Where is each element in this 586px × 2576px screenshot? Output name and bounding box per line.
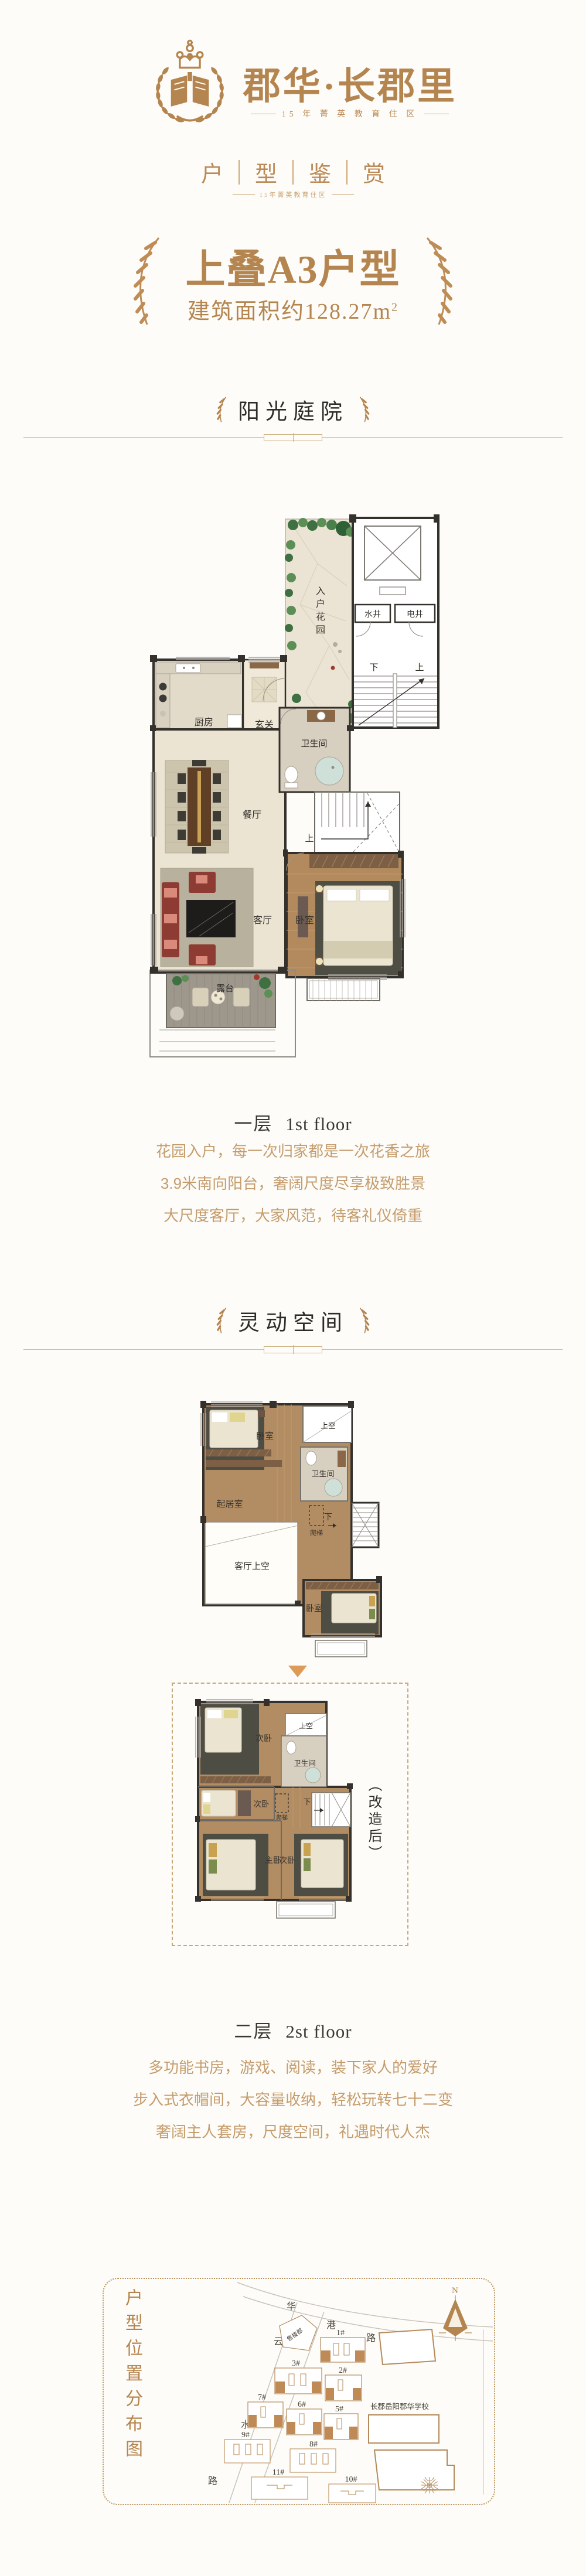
room-label-bedroom-a: 次卧 [255,1734,272,1744]
brand-tagline: 15 年 菁 英 教 育 住 区 [251,108,449,120]
living-void: 客厅上空 [205,1522,298,1604]
bathroom-f2: 卫生间 [301,1447,347,1501]
floor2-description: 多功能书房，游戏、阅读，装下家人的爱好 步入式衣帽间，大容量收纳，轻松玩转七十二… [0,2052,586,2148]
unit-title: 上叠A3户型 [0,237,586,295]
sales-office: 售楼部 [280,2315,317,2350]
stove-burner [159,683,167,691]
road-label-char: 港 [326,2320,336,2331]
book-icon [171,72,209,107]
floor2-plan-original: 卧室 上空 卫生间 起居室 客厅上空 爬梯 [193,1397,387,1661]
badge-text: 阳光庭院 [238,394,348,425]
stair-label-down: 下 [369,663,378,673]
room-label-bedroom-c: 次卧 [280,1856,295,1865]
compass-n: N [452,2286,458,2295]
bathtub [315,757,343,785]
building-label: 6# [298,2400,306,2409]
kitchen: 厨房 [154,660,243,729]
desc-line: 奢阔主人套房，尺度空间，礼遇时代人杰 [0,2116,586,2148]
building-core: 水井 电井 下 上 [353,518,438,728]
sitemap: 华 港 路 云 水 路 N 售楼部 1# [104,2279,494,2504]
sitemap-title: 户型位置分布图 [119,2288,145,2465]
stair-label-down: 下 [324,1513,332,1522]
room-label-char: 入 [316,586,325,596]
reno-void: 上空 [285,1714,326,1736]
desc-line: 大尺度客厅，大家风范，待客礼仪倚重 [0,1200,586,1232]
series-separator [346,160,347,185]
poster-page: 郡华·长郡里 15 年 菁 英 教 育 住 区 户 型 鉴 赏 15年菁英教育住… [0,0,586,2576]
series-tagline: 15年菁英教育住区 [0,190,586,199]
room-label-bedroom: 卧室 [256,1431,274,1441]
room-label-char: 园 [316,625,325,635]
room-label-ladder: 爬梯 [310,1529,323,1537]
room-label-void: 上空 [321,1421,336,1430]
desc-line: 步入式衣帽间，大容量收纳，轻松玩转七十二变 [0,2084,586,2116]
wheat-branch-right-icon [357,391,370,428]
bedroom-f1: 卧室 [287,853,403,977]
room-label-electric-shaft: 电井 [407,610,423,619]
void-top: 上空 [303,1406,352,1442]
floor1-label: 一层1st floor [0,1109,586,1135]
stair-label-down: 下 [304,1798,311,1806]
reno-bathroom: 卫生间 [281,1736,326,1787]
building-label: 8# [309,2440,318,2449]
floor1-label-cn: 一层 [234,1114,272,1134]
room-label-char: 户 [316,599,325,609]
building-8: 8# [290,2440,336,2472]
room-label-bedroom-b: 次卧 [254,1800,270,1809]
reno-balcony [277,1902,335,1918]
desc-line: 花园入户，每一次归家都是一次花香之旅 [0,1135,586,1168]
building-10: 10# [329,2475,376,2503]
building-6: 6# [287,2400,322,2435]
room-label-void: 上空 [299,1722,313,1730]
building-label: 9# [241,2431,250,2439]
unit-area-sup: 2 [391,301,398,313]
bedroom-f2-bottom: 卧室 [304,1580,381,1636]
arrow-down-icon [288,1666,307,1677]
series-char: 鉴 [309,156,331,188]
terrace-chair [192,988,209,1006]
toilet [285,766,298,783]
floor2-label-cn: 二层 [234,2021,272,2042]
room-label-terrace: 露台 [216,984,234,994]
room-label-char: 花 [316,612,325,622]
tagline-line-left [233,195,255,195]
desc-line: 多功能书房，游戏、阅读，装下家人的爱好 [0,2052,586,2084]
room-label-bedroom2: 卧室 [306,1603,322,1613]
floor2-label-en: 2st floor [285,2021,352,2042]
floor1-plan: 入 户 花 园 水井 电井 下 上 [146,504,451,1090]
building-5: 5# [324,2405,358,2439]
renovated-tag: （改造后） [363,1777,384,1862]
building-9: 9# [224,2431,270,2463]
interior-stairs: 上 [305,792,400,853]
building-label: 7# [258,2393,266,2402]
building-label: 3# [292,2359,300,2368]
divider-tick [293,1345,294,1354]
floor2-plan-renovated: 次卧 上空 卫生间 次卧 爬梯 [185,1696,360,1925]
school-label: 长郡岳阳郡华学校 [370,2402,430,2411]
building-label: 10# [345,2475,357,2484]
room-label-bedroom: 卧室 [295,915,314,926]
building-label: 1# [336,2329,345,2338]
compass-icon: N [439,2286,472,2341]
section-badge-flexible-space: 灵动空间 [0,1302,586,1339]
room-label-bathroom: 卫生间 [294,1759,316,1768]
brand-tagline-text: 15 年 菁 英 教 育 住 区 [282,108,418,120]
section-divider [23,432,563,443]
series-title: 户 型 鉴 赏 [0,156,586,188]
terrace-chair [233,988,250,1006]
series-char: 赏 [363,156,385,188]
crown-icon [177,40,203,67]
road-label-char: 路 [208,2476,217,2486]
badge-text: 灵动空间 [238,1305,348,1336]
floor1-label-en: 1st floor [285,1114,352,1134]
floor1-description: 花园入户，每一次归家都是一次花香之旅 3.9米南向阳台，奢阔尺度尽享极致胜景 大… [0,1135,586,1232]
stair-label-up: 上 [415,663,424,673]
series-separator [292,160,294,185]
room-label-bathroom: 卫生间 [311,1469,334,1478]
room-label-living-void: 客厅上空 [234,1561,270,1571]
building-7: 7# [248,2393,283,2428]
wheat-branch-left-icon [216,1302,229,1339]
room-label-family-room: 起居室 [216,1499,243,1509]
section-divider [23,1345,563,1355]
kitchen-sink [176,664,200,673]
series-char: 户 [201,156,223,188]
bathroom-f1: 卫生间 [280,708,350,792]
entry-garden: 入 户 花 园 [285,518,356,728]
series-separator [239,160,240,185]
bedroom-balcony [307,978,380,1001]
building-label: 11# [272,2468,284,2477]
floor2-label: 二层2st floor [0,2017,586,2043]
room-label-kitchen: 厨房 [195,717,213,728]
building-label: 5# [335,2405,343,2414]
road-label-char: 路 [366,2333,376,2343]
brand-name: 郡华·长郡里 [237,56,463,110]
stove-burner [159,695,167,702]
section-badge-sunny-courtyard: 阳光庭院 [0,391,586,428]
building-label: 2# [339,2366,347,2375]
unit-area: 建筑面积约128.27m2 [0,293,586,325]
tagline-line-left [251,114,276,114]
tagline-line-right [424,114,449,114]
building-11: 11# [251,2468,308,2499]
tree-icon [421,2477,438,2493]
room-label-water-shaft: 水井 [364,610,381,619]
school-buildings: 长郡岳阳郡华学校 [369,2329,454,2493]
series-char: 型 [255,156,277,188]
room-label-living: 客厅 [253,915,272,926]
building-3: 3# [275,2359,322,2394]
wheat-branch-left-icon [216,391,229,428]
road-label-char: 华 [287,2301,296,2312]
room-label-bathroom: 卫生间 [301,739,327,749]
room-label-dining: 餐厅 [243,810,261,820]
unit-area-text: 建筑面积约128.27m [188,299,391,324]
desc-line: 3.9米南向阳台，奢阔尺度尽享极致胜景 [0,1168,586,1200]
stair-label-up2: 上 [305,834,314,844]
series-tagline-text: 15年菁英教育住区 [260,190,327,199]
balcony-f2 [315,1640,367,1657]
tagline-line-right [332,195,354,195]
building-2: 2# [325,2366,362,2401]
divider-tick [293,433,294,442]
brand-wreath-logo-icon [145,39,234,128]
building-1: 1# [321,2329,365,2362]
wheat-branch-right-icon [357,1302,370,1339]
terrace: 露台 [150,970,295,1057]
